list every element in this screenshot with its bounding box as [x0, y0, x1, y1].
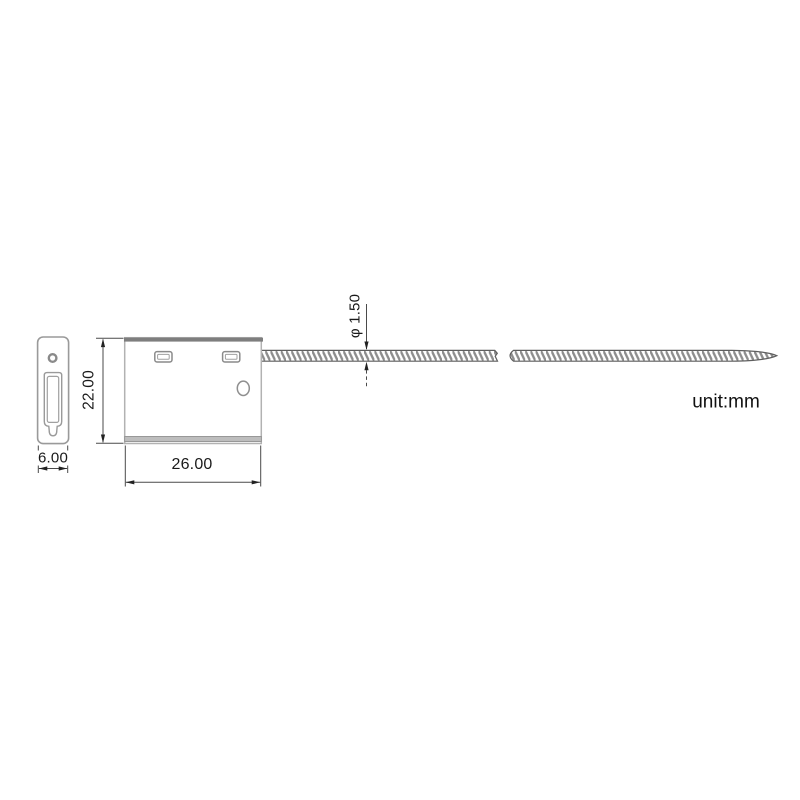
arrowhead-left [126, 480, 135, 484]
arrowhead-down [364, 342, 368, 351]
dimension-height [96, 338, 124, 443]
side-view [38, 337, 69, 444]
body-hole [237, 381, 249, 395]
drawing-linework [0, 0, 800, 800]
arrowhead-down [101, 435, 105, 444]
side-view-slot-inner [47, 376, 58, 422]
dim-cable-diameter-label: φ 1.50 [348, 293, 363, 339]
unit-label: unit:mm [692, 393, 760, 412]
cable [261, 350, 777, 361]
arrowhead-left [39, 466, 48, 470]
body-slot-left [155, 352, 172, 362]
arrowhead-up [364, 362, 368, 371]
arrowhead-right [252, 480, 261, 484]
seal-body [124, 338, 263, 444]
arrowhead-right [59, 466, 67, 470]
body-top-band [124, 338, 263, 342]
cable-segment-right [510, 350, 777, 361]
cable-segment-left [261, 350, 498, 361]
dim-height-label: 22.00 [81, 369, 97, 411]
body-bottom-band [125, 436, 262, 441]
body-slot-right [223, 352, 240, 362]
dimension-cable-diameter [364, 304, 368, 389]
dim-body-width-label: 26.00 [170, 457, 213, 473]
dim-side-width-label: 6.00 [37, 451, 69, 466]
cable-seal-technical-drawing: 22.00 6.00 26.00 φ 1.50 unit:mm [0, 0, 800, 800]
arrowhead-up [101, 339, 105, 348]
